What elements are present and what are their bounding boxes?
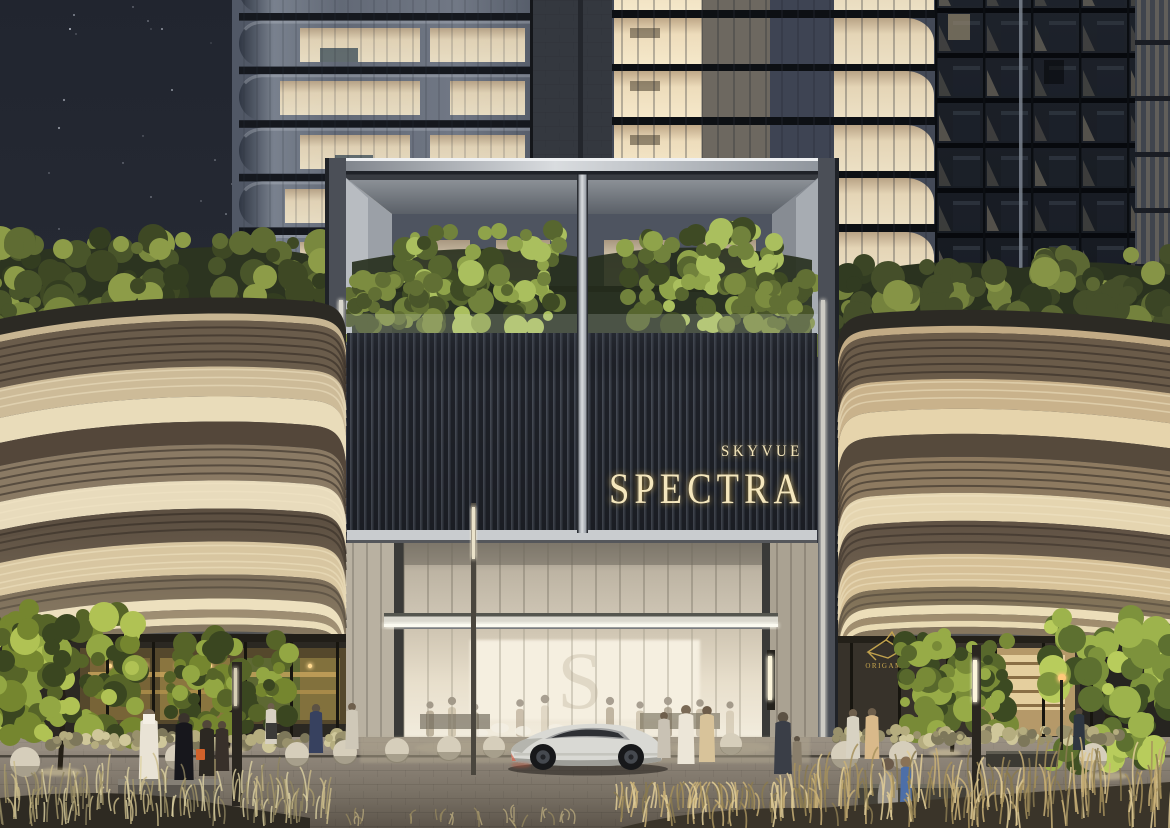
svg-text:SPECTRA: SPECTRA — [609, 466, 805, 513]
svg-text:SKYVUE: SKYVUE — [721, 443, 803, 460]
